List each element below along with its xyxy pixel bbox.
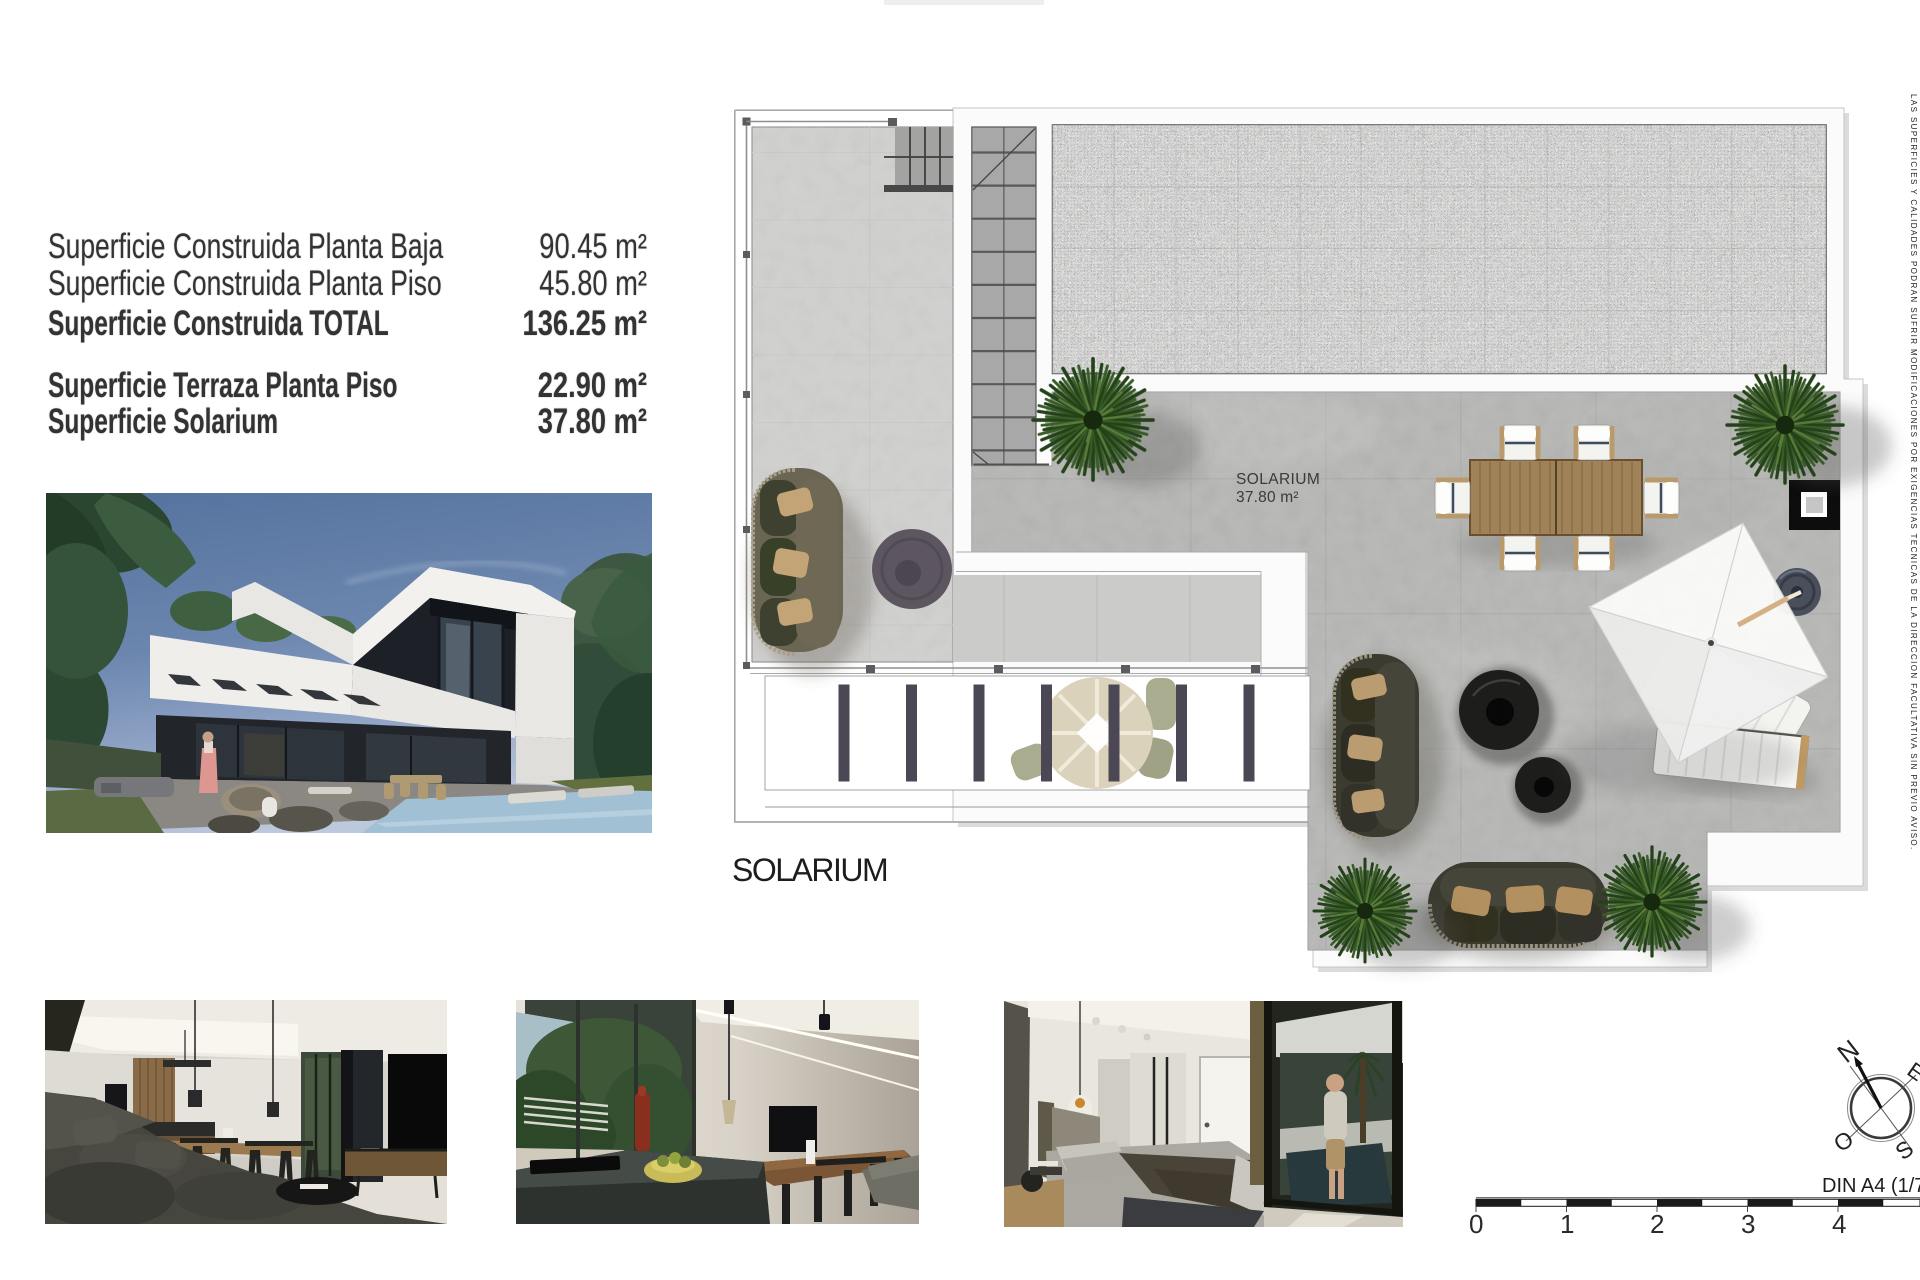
svg-text:SOLARIUM: SOLARIUM — [732, 852, 887, 888]
svg-text:E: E — [1903, 1057, 1920, 1086]
svg-text:DIN A4 (1/75: DIN A4 (1/75 — [1822, 1175, 1920, 1197]
svg-text:1: 1 — [1560, 1209, 1574, 1239]
svg-text:2: 2 — [1650, 1209, 1664, 1239]
svg-text:O: O — [1829, 1125, 1859, 1157]
svg-text:0: 0 — [1469, 1209, 1483, 1239]
svg-text:S: S — [1890, 1135, 1918, 1165]
svg-text:3: 3 — [1741, 1209, 1755, 1239]
svg-text:SOLARIUM: SOLARIUM — [1236, 471, 1320, 488]
svg-text:LAS SUPERFICIES Y CALIDADES PO: LAS SUPERFICIES Y CALIDADES PODRAN SUFRI… — [1909, 94, 1918, 851]
svg-text:4: 4 — [1832, 1209, 1846, 1239]
svg-text:37.80 m²: 37.80 m² — [1236, 489, 1299, 506]
